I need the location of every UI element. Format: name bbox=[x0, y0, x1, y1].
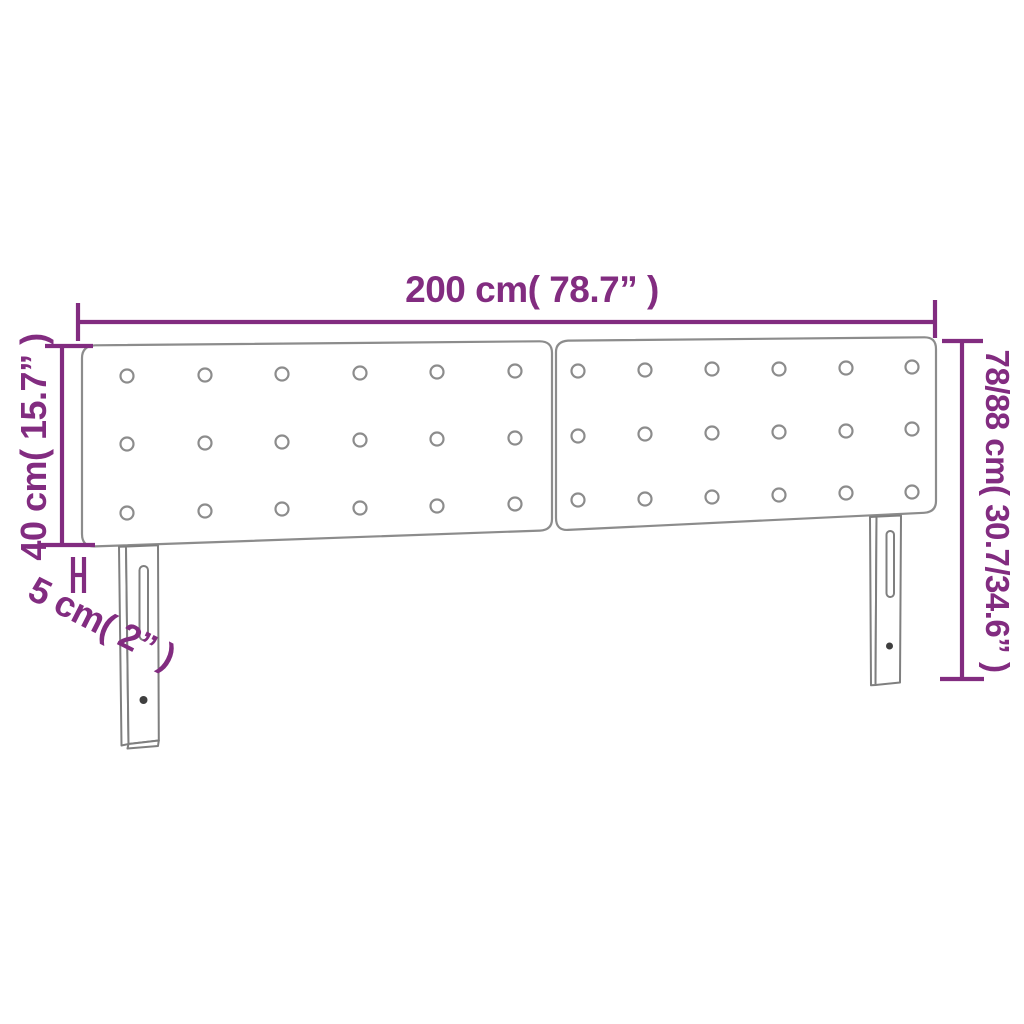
headboard-diagram-linework bbox=[0, 0, 1024, 1024]
headboard-panel-right bbox=[556, 337, 936, 530]
right-leg bbox=[870, 516, 901, 686]
right-leg-slot bbox=[887, 531, 895, 597]
diagram-canvas: 200 cm( 78.7” ) 40 cm( 15.7” ) 78/88 cm(… bbox=[0, 0, 1024, 1024]
left-leg-screw-hole bbox=[140, 696, 148, 704]
right-leg-screw-hole bbox=[886, 643, 893, 650]
width-dimension-label: 200 cm( 78.7” ) bbox=[405, 269, 659, 311]
headboard-panel-left bbox=[82, 341, 552, 546]
panel-height-dimension-label: 40 cm( 15.7” ) bbox=[13, 333, 55, 560]
total-height-dimension-label: 78/88 cm( 30.7/34.6” ) bbox=[978, 350, 1016, 673]
